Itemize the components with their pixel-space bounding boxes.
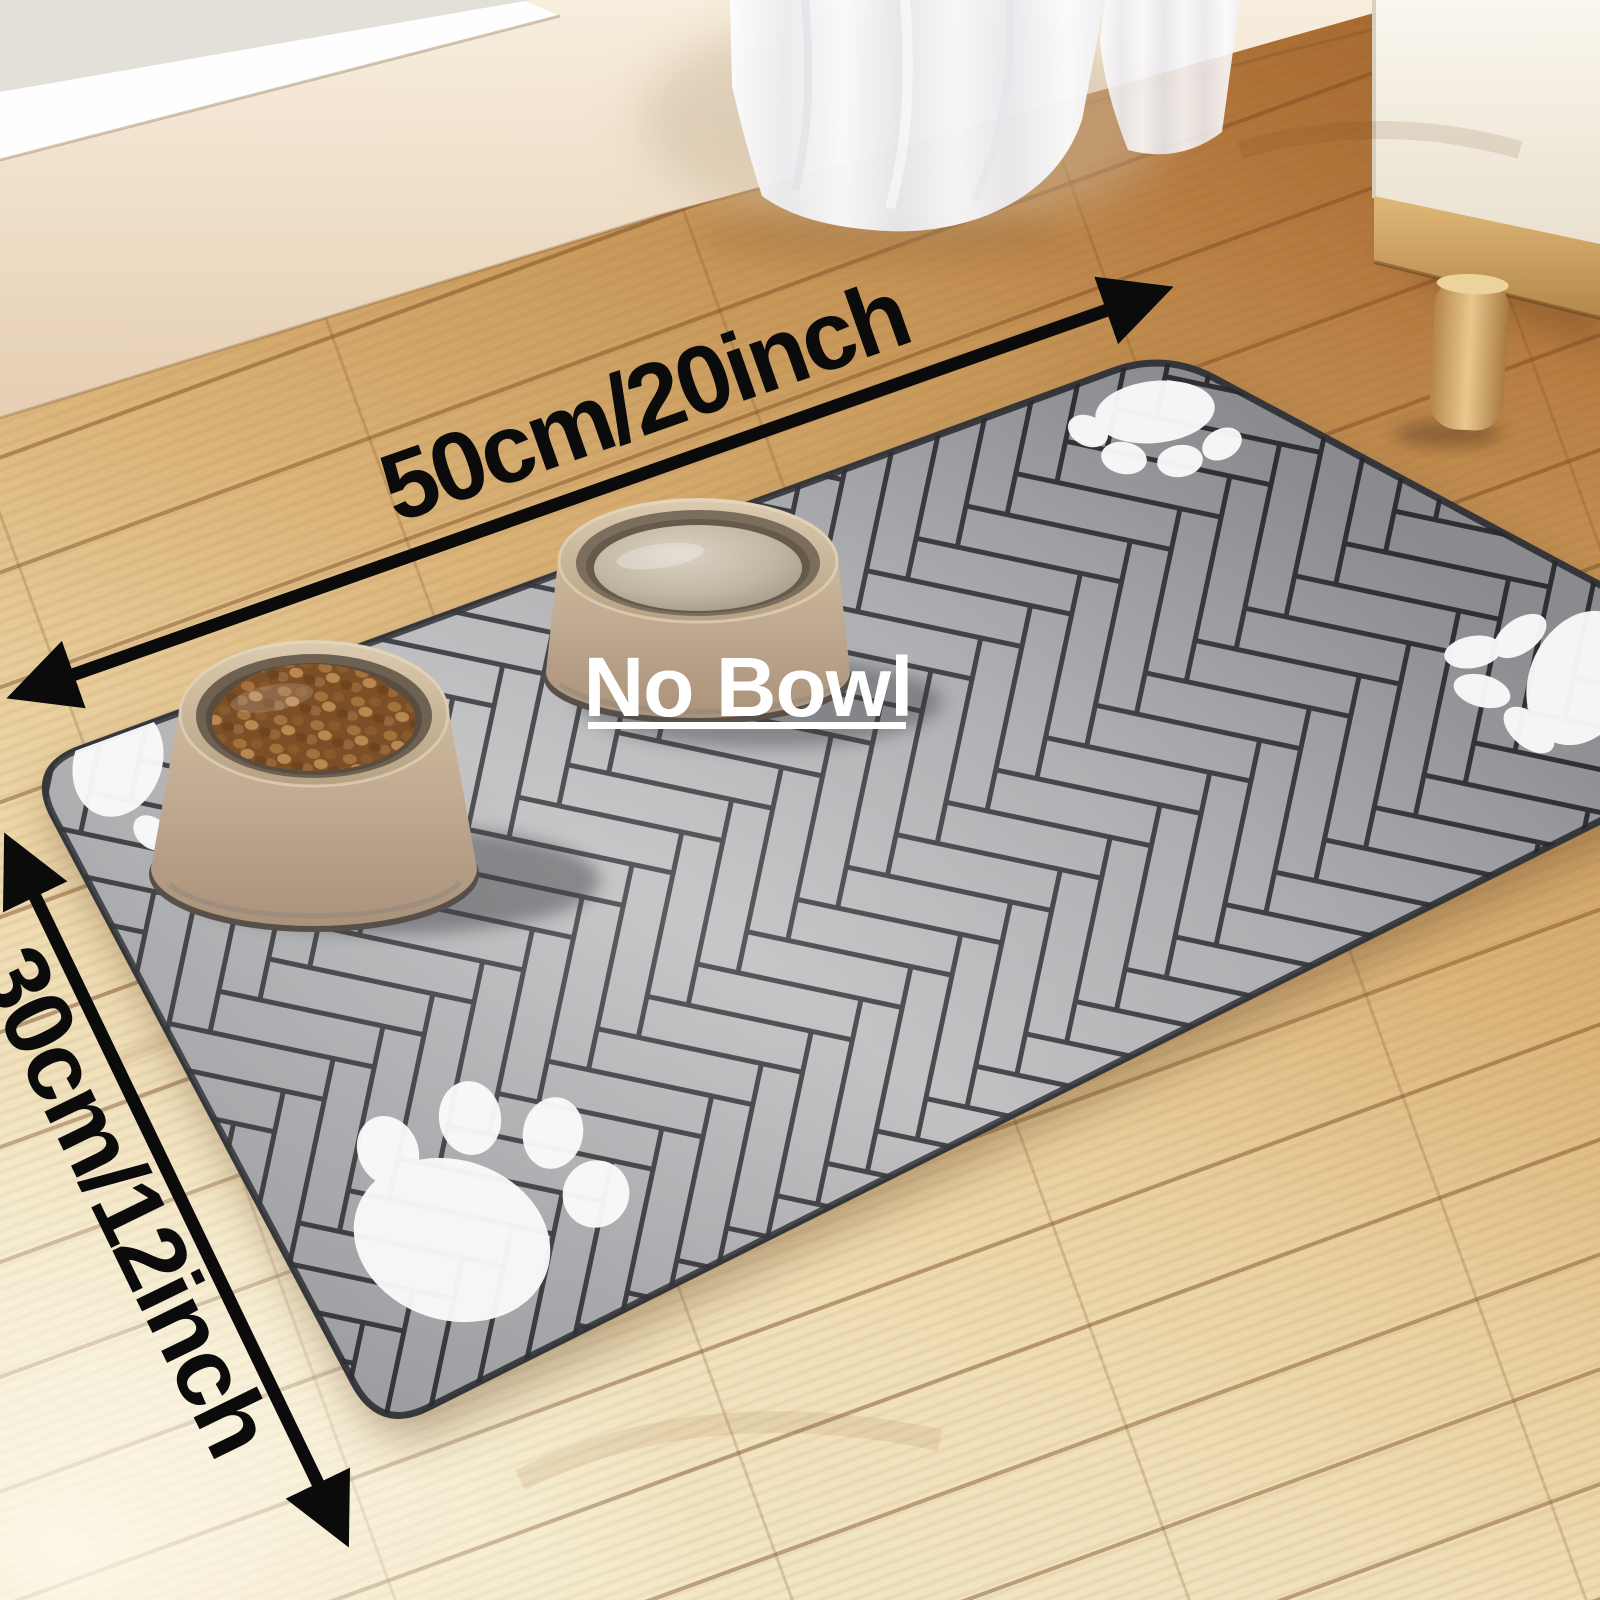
no-bowl-annotation: No Bowl (584, 640, 913, 734)
water (594, 525, 802, 611)
wood-grain (520, 1422, 940, 1480)
no-bowl-underline (588, 722, 906, 729)
no-bowl-label: No Bowl (584, 640, 913, 734)
cabinet-leg (1428, 272, 1510, 432)
cabinet (1374, 0, 1600, 447)
wood-floor: 50cm/20inch 30cm/12inch No Bowl (0, 0, 1600, 1600)
curtain-panel-right (1100, 0, 1240, 154)
scene: 50cm/20inch 30cm/12inch No Bowl (0, 0, 1600, 1600)
